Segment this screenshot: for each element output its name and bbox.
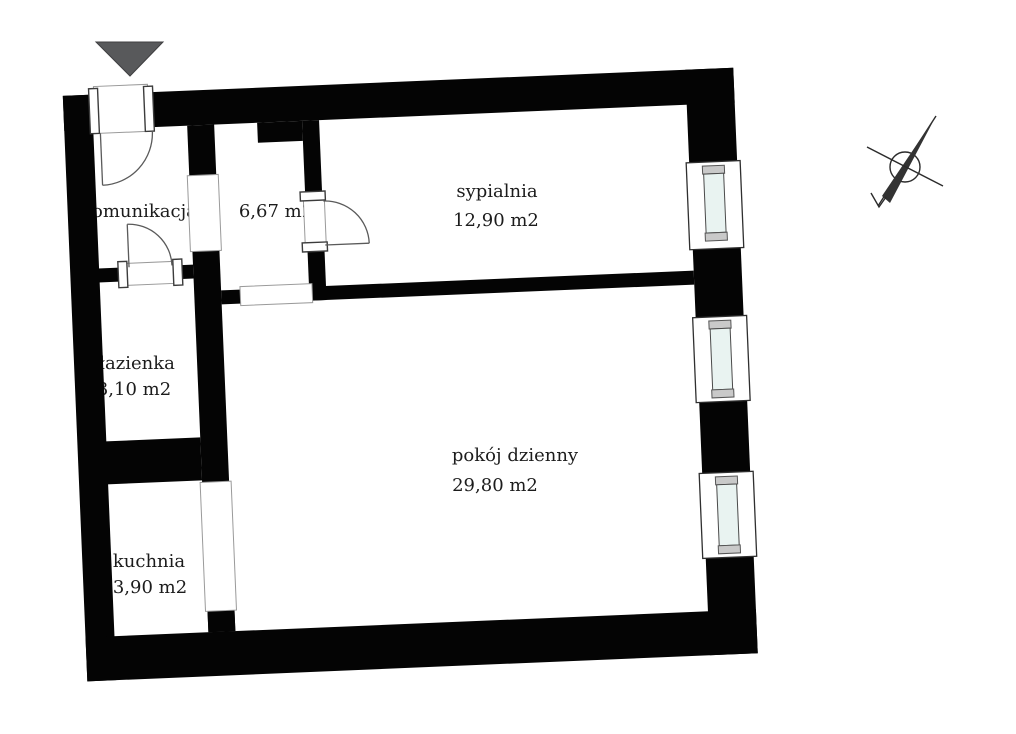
door-sypialnia — [300, 189, 369, 252]
room-label-komunikacja: komunikacja — [81, 201, 197, 222]
entry-door-jamb-right — [143, 86, 154, 131]
wall-top-stub — [257, 121, 303, 143]
opening-kuchnia-pokoj — [200, 481, 236, 611]
door-sypialnia-jamb-top — [300, 191, 325, 201]
window-1 — [686, 161, 744, 250]
window-cap-bottom — [705, 232, 727, 241]
floorplan-page: komunikacja 6,67 m2 sypialnia 12,90 m2 ł… — [0, 0, 1016, 734]
door-sypialnia-threshold — [303, 199, 326, 245]
door-lazienka-arc-icon — [127, 222, 172, 267]
window-cap-bottom — [712, 389, 734, 398]
window-3 — [699, 471, 757, 558]
room-labels: komunikacja 6,67 m2 sypialnia 12,90 m2 ł… — [81, 181, 579, 598]
room-area-komunikacja: 6,67 m2 — [239, 201, 313, 222]
window-pane — [717, 484, 740, 546]
room-label-kuchnia: kuchnia — [113, 551, 186, 572]
window-cap-top — [715, 476, 737, 485]
opening-komunikacja-middle — [187, 174, 221, 251]
room-label-sypialnia: sypialnia — [456, 181, 538, 202]
door-sypialnia-jamb-bottom — [302, 242, 327, 252]
room-area-lazienka: 3,10 m2 — [97, 379, 171, 400]
window-2 — [693, 315, 751, 402]
window-cap-top — [709, 320, 731, 329]
north-compass-icon — [867, 116, 943, 207]
window-pane — [704, 173, 726, 233]
window-cap-bottom — [718, 545, 740, 554]
wall-lazienka-kuchnia — [102, 437, 202, 484]
entry-arrow-icon — [96, 42, 163, 76]
door-sypialnia-arc-icon — [323, 199, 369, 245]
room-area-sypialnia: 12,90 m2 — [453, 210, 539, 231]
door-lazienka-jamb-right — [173, 259, 183, 285]
entry-door-threshold — [93, 84, 149, 133]
wall-bottom — [86, 609, 758, 681]
window-pane — [710, 328, 733, 390]
entry-door-arc-icon — [100, 131, 154, 185]
floorplan-canvas: komunikacja 6,67 m2 sypialnia 12,90 m2 ł… — [0, 0, 1016, 734]
room-area-kuchnia: 3,90 m2 — [113, 577, 187, 598]
room-area-pokoj-dzienny: 29,80 m2 — [452, 475, 538, 496]
compass-cross-line — [867, 147, 943, 186]
door-lazienka-threshold — [125, 261, 176, 285]
door-lazienka-jamb-left — [118, 261, 128, 287]
entry-door-jamb-left — [89, 88, 100, 133]
opening-middle-pokoj — [240, 284, 313, 306]
window-cap-top — [702, 165, 724, 174]
room-label-pokoj-dzienny: pokój dzienny — [452, 445, 579, 466]
entry-door-leaf — [100, 133, 102, 185]
wall-top — [63, 68, 735, 131]
entry-door — [88, 84, 156, 186]
door-komunikacja-lazienka — [116, 222, 183, 288]
wall-kuchnia-stub — [207, 609, 235, 632]
room-label-lazienka: łazienka — [99, 353, 175, 374]
door-lazienka-leaf — [127, 224, 129, 267]
door-sypialnia-leaf — [325, 243, 369, 245]
